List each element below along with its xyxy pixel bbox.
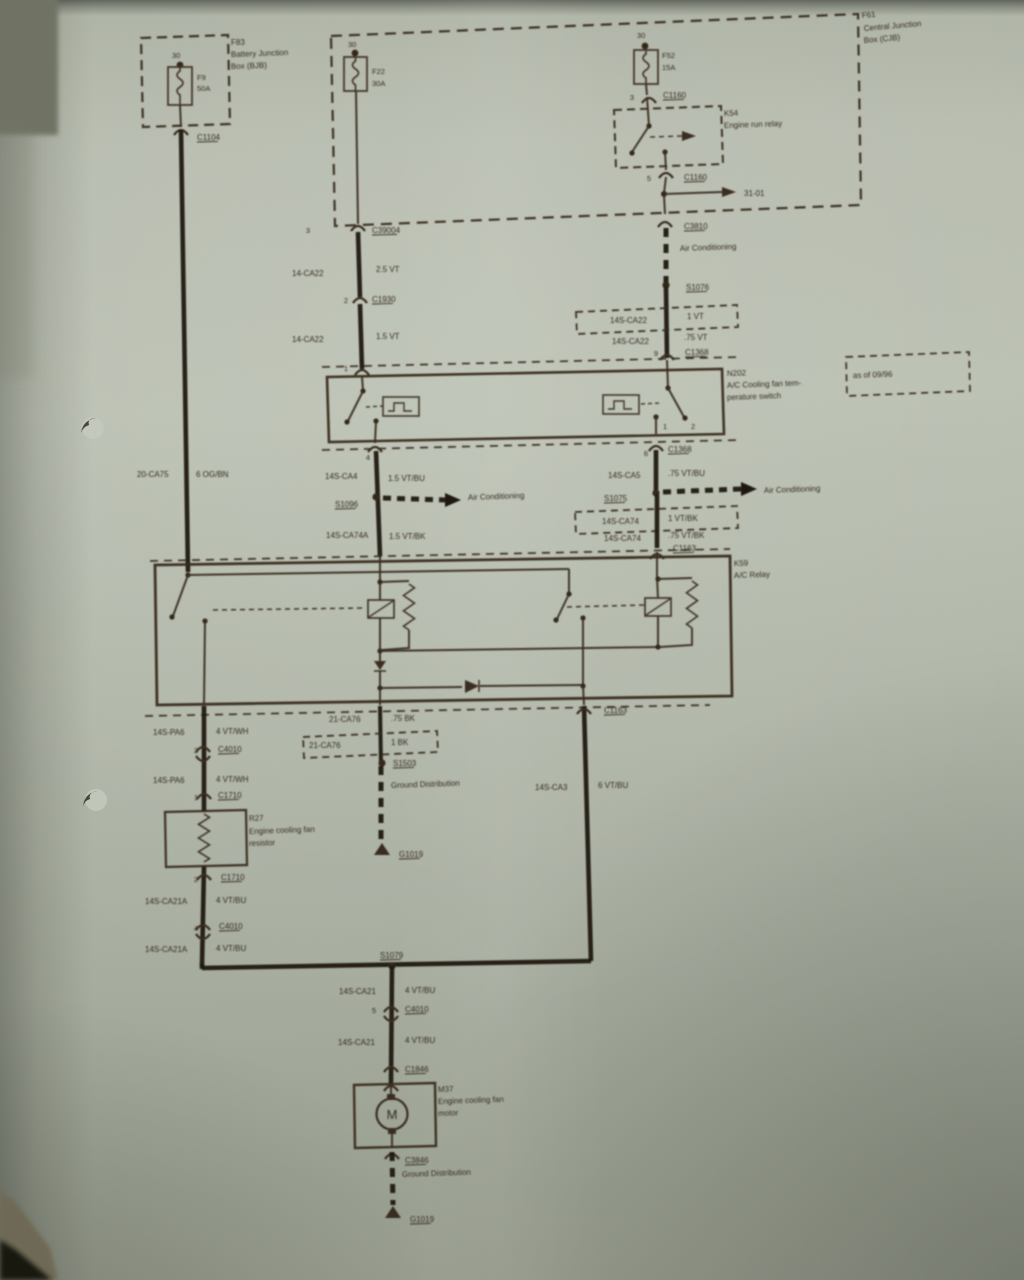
svg-text:6 OG/BN: 6 OG/BN xyxy=(196,470,229,479)
svg-text:14S-CA5: 14S-CA5 xyxy=(608,471,641,480)
svg-text:6: 6 xyxy=(644,449,648,458)
svg-text:14S-PA6: 14S-PA6 xyxy=(153,776,185,785)
svg-text:C1160: C1160 xyxy=(663,91,687,100)
svg-text:14S-CA4: 14S-CA4 xyxy=(325,472,358,481)
svg-text:4 VT/BU: 4 VT/BU xyxy=(405,1036,435,1045)
svg-text:N202: N202 xyxy=(727,368,747,378)
svg-text:Engine cooling fan: Engine cooling fan xyxy=(438,1095,504,1106)
svg-text:30: 30 xyxy=(172,51,180,60)
svg-text:14S-CA3: 14S-CA3 xyxy=(535,783,568,792)
svg-text:3: 3 xyxy=(630,93,634,102)
svg-text:motor: motor xyxy=(438,1108,459,1118)
svg-text:A/C Cooling fan tem-: A/C Cooling fan tem- xyxy=(727,378,802,390)
svg-text:A/C Relay: A/C Relay xyxy=(734,570,770,580)
svg-text:F22: F22 xyxy=(372,67,385,76)
svg-text:resistor: resistor xyxy=(249,838,276,848)
svg-text:1 BK: 1 BK xyxy=(391,738,409,747)
svg-text:C1930: C1930 xyxy=(372,295,396,304)
svg-text:1.5 VT/BK: 1.5 VT/BK xyxy=(389,532,426,541)
svg-text:14S-PA6: 14S-PA6 xyxy=(153,728,185,737)
svg-text:4 VT/WH: 4 VT/WH xyxy=(216,727,249,736)
svg-text:.75 VT/BU: .75 VT/BU xyxy=(668,469,705,478)
svg-text:F61: F61 xyxy=(861,10,876,20)
svg-text:Air Conditioning: Air Conditioning xyxy=(680,242,737,253)
svg-text:14S-CA22: 14S-CA22 xyxy=(612,337,649,346)
svg-text:Central Junction: Central Junction xyxy=(863,19,921,33)
svg-text:2.5 VT: 2.5 VT xyxy=(376,265,400,274)
svg-text:30: 30 xyxy=(348,40,356,49)
svg-text:F52: F52 xyxy=(662,51,675,60)
svg-text:1: 1 xyxy=(344,364,348,373)
svg-text:Box (CJB): Box (CJB) xyxy=(863,33,900,45)
svg-text:14S-CA74: 14S-CA74 xyxy=(604,534,641,543)
svg-text:Battery Junction: Battery Junction xyxy=(231,48,289,59)
svg-text:G1019: G1019 xyxy=(399,850,424,859)
svg-text:C1710: C1710 xyxy=(218,791,242,800)
svg-text:C1368: C1368 xyxy=(668,445,692,454)
svg-text:4: 4 xyxy=(366,453,370,462)
svg-text:1.5 VT: 1.5 VT xyxy=(376,332,400,341)
svg-text:4 VT/BU: 4 VT/BU xyxy=(216,944,246,953)
svg-text:14-CA22: 14-CA22 xyxy=(292,269,324,278)
svg-text:50A: 50A xyxy=(197,84,210,93)
svg-text:K54: K54 xyxy=(724,108,739,118)
svg-text:21-CA76: 21-CA76 xyxy=(329,715,361,724)
svg-text:2: 2 xyxy=(344,296,348,305)
svg-text:4 VT/BU: 4 VT/BU xyxy=(216,896,246,905)
svg-text:perature switch: perature switch xyxy=(727,391,782,402)
svg-text:14S-CA21: 14S-CA21 xyxy=(338,1038,375,1047)
svg-text:21-CA76: 21-CA76 xyxy=(309,741,341,750)
svg-text:Air Conditioning: Air Conditioning xyxy=(468,491,525,502)
svg-text:Air Conditioning: Air Conditioning xyxy=(764,484,821,495)
svg-text:C1368: C1368 xyxy=(685,348,709,357)
svg-text:14S-CA74: 14S-CA74 xyxy=(602,517,639,526)
svg-text:4 VT/WH: 4 VT/WH xyxy=(216,775,249,784)
svg-text:1 VT: 1 VT xyxy=(687,312,704,321)
svg-text:14S-CA21A: 14S-CA21A xyxy=(145,897,188,906)
svg-text:31-01: 31-01 xyxy=(744,189,765,198)
svg-text:F83: F83 xyxy=(231,38,245,47)
svg-text:C3810: C3810 xyxy=(684,222,708,231)
svg-text:C4010: C4010 xyxy=(405,1005,429,1014)
svg-text:1 VT/BK: 1 VT/BK xyxy=(668,514,698,523)
svg-text:as of 09/96: as of 09/96 xyxy=(853,370,893,380)
svg-text:S1075: S1075 xyxy=(604,494,628,503)
svg-text:14S-CA22: 14S-CA22 xyxy=(610,316,647,325)
svg-text:C1104: C1104 xyxy=(197,133,221,142)
svg-text:C3846: C3846 xyxy=(405,1156,429,1165)
svg-text:C1160: C1160 xyxy=(684,173,708,182)
svg-text:14-CA22: 14-CA22 xyxy=(292,335,324,344)
svg-text:S1079: S1079 xyxy=(380,951,404,960)
svg-text:5: 5 xyxy=(647,174,651,183)
svg-text:R27: R27 xyxy=(249,813,265,823)
svg-text:S1076: S1076 xyxy=(686,283,710,292)
svg-text:6 VT/BU: 6 VT/BU xyxy=(598,781,628,790)
svg-text:M37: M37 xyxy=(438,1084,454,1094)
svg-text:Box (BJB): Box (BJB) xyxy=(231,61,268,71)
svg-text:15A: 15A xyxy=(662,63,675,72)
svg-text:1: 1 xyxy=(663,422,667,431)
svg-text:.75 VT/BK: .75 VT/BK xyxy=(668,531,705,540)
svg-text:C4010: C4010 xyxy=(218,745,242,754)
svg-text:14S-CA21: 14S-CA21 xyxy=(339,987,376,996)
svg-text:Ground Distribution: Ground Distribution xyxy=(391,779,460,790)
svg-text:.75 BK: .75 BK xyxy=(391,714,416,723)
svg-text:C39004: C39004 xyxy=(372,226,401,235)
svg-text:9: 9 xyxy=(654,349,658,358)
svg-text:4 VT/BU: 4 VT/BU xyxy=(405,986,435,995)
svg-text:3: 3 xyxy=(306,226,310,235)
svg-text:C1163: C1163 xyxy=(673,544,697,553)
svg-text:.75 VT: .75 VT xyxy=(684,333,708,342)
svg-text:14S-CA21A: 14S-CA21A xyxy=(145,945,188,954)
svg-text:2: 2 xyxy=(691,422,695,431)
svg-text:C4010: C4010 xyxy=(219,922,243,931)
svg-text:30A: 30A xyxy=(372,79,385,88)
svg-text:Engine run relay: Engine run relay xyxy=(724,119,783,130)
svg-text:1.5 VT/BU: 1.5 VT/BU xyxy=(388,474,425,483)
svg-text:S1096: S1096 xyxy=(335,500,359,509)
svg-text:Ground Distribution: Ground Distribution xyxy=(402,1168,471,1179)
svg-text:K59: K59 xyxy=(734,558,749,568)
svg-text:30: 30 xyxy=(637,31,645,40)
svg-text:C1163: C1163 xyxy=(604,706,628,715)
svg-text:G1019: G1019 xyxy=(410,1215,435,1224)
svg-text:Engine cooling fan: Engine cooling fan xyxy=(249,825,315,836)
svg-text:F9: F9 xyxy=(197,73,206,82)
svg-text:20-CA75: 20-CA75 xyxy=(137,470,169,479)
svg-text:14S-CA74A: 14S-CA74A xyxy=(326,531,369,540)
svg-text:C1846: C1846 xyxy=(405,1065,429,1074)
svg-text:M: M xyxy=(387,1107,398,1122)
svg-text:5: 5 xyxy=(372,1006,376,1015)
svg-text:C1710: C1710 xyxy=(221,873,245,882)
svg-text:S1503: S1503 xyxy=(393,759,417,768)
